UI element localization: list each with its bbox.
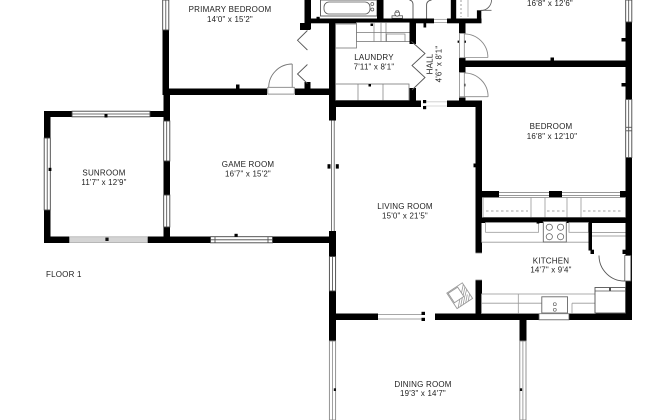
svg-text:LIVING ROOM: LIVING ROOM [377,202,433,211]
svg-text:DINING ROOM: DINING ROOM [394,380,451,389]
svg-text:HALL: HALL [426,53,435,74]
svg-text:FLOOR 1: FLOOR 1 [46,270,82,279]
svg-text:LAUNDRY: LAUNDRY [354,53,394,62]
svg-text:16'8" x 12'6": 16'8" x 12'6" [527,0,573,8]
svg-text:4'6" x 8'1": 4'6" x 8'1" [435,46,444,83]
svg-text:16'7" x 15'2": 16'7" x 15'2" [225,170,271,179]
svg-text:BEDROOM: BEDROOM [530,122,573,131]
svg-text:SUNROOM: SUNROOM [82,169,125,178]
svg-text:KITCHEN: KITCHEN [533,257,570,266]
svg-text:19'3" x 14'7": 19'3" x 14'7" [400,389,446,398]
svg-text:GAME ROOM: GAME ROOM [222,160,275,169]
svg-text:7'11" x 8'1": 7'11" x 8'1" [354,63,395,72]
svg-text:PRIMARY BEDROOM: PRIMARY BEDROOM [189,5,272,14]
svg-text:11'7" x 12'9": 11'7" x 12'9" [81,178,126,187]
svg-text:16'8" x 12'10": 16'8" x 12'10" [527,132,577,141]
svg-text:14'0" x 15'2": 14'0" x 15'2" [207,15,253,24]
svg-text:14'7" x 9'4": 14'7" x 9'4" [530,266,571,275]
svg-text:15'0" x 21'5": 15'0" x 21'5" [382,212,428,221]
